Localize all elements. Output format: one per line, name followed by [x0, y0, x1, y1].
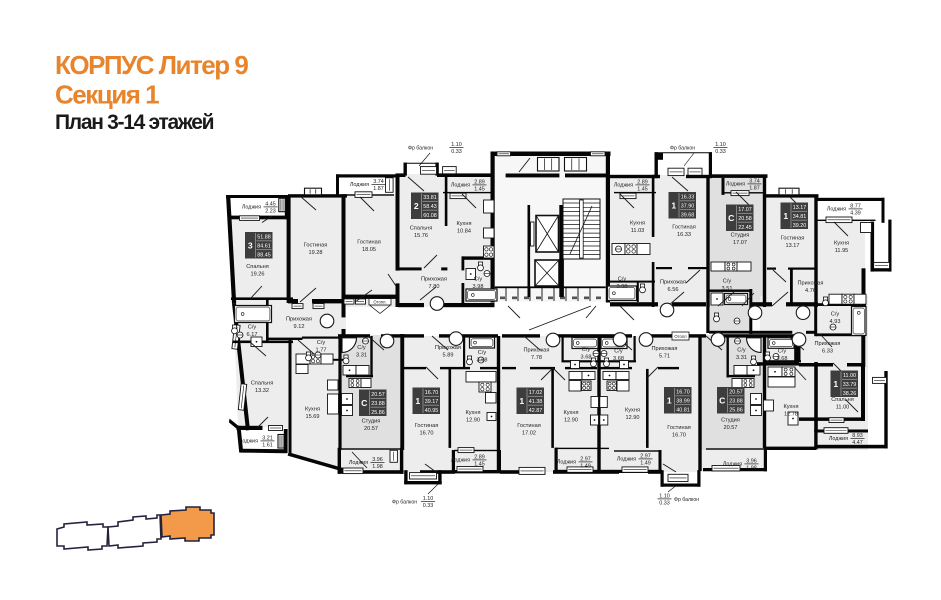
svg-text:12.90: 12.90: [626, 415, 640, 421]
svg-text:12.78: 12.78: [784, 411, 798, 417]
svg-text:37.90: 37.90: [681, 203, 695, 209]
svg-text:Гостиная: Гостиная: [517, 423, 540, 429]
svg-text:3.68: 3.68: [581, 354, 592, 360]
svg-text:Студия: Студия: [362, 419, 381, 425]
svg-text:Кухня: Кухня: [457, 221, 472, 227]
svg-text:Прихожая: Прихожая: [660, 280, 686, 286]
svg-text:1.87: 1.87: [373, 186, 384, 192]
svg-text:13.32: 13.32: [255, 388, 269, 394]
svg-text:1: 1: [671, 201, 676, 211]
svg-text:0.33: 0.33: [423, 503, 434, 509]
svg-text:11.03: 11.03: [631, 228, 645, 234]
svg-text:2.89: 2.89: [637, 179, 648, 185]
svg-text:2.89: 2.89: [474, 454, 485, 460]
svg-text:Отопл: Отопл: [674, 334, 687, 339]
svg-text:Гостиная: Гостиная: [415, 423, 438, 429]
svg-text:С/у: С/у: [474, 277, 483, 283]
svg-text:88.45: 88.45: [257, 252, 271, 258]
svg-text:С: С: [361, 398, 367, 408]
svg-text:16.70: 16.70: [425, 390, 439, 396]
svg-text:17.07: 17.07: [733, 240, 747, 246]
svg-text:40.81: 40.81: [676, 407, 690, 413]
svg-text:Фр балкон: Фр балкон: [674, 497, 699, 503]
svg-text:3.96: 3.96: [746, 458, 757, 464]
svg-text:16.70: 16.70: [676, 390, 690, 396]
svg-text:Прихожая: Прихожая: [652, 346, 678, 352]
svg-text:Спальня: Спальня: [410, 226, 432, 232]
svg-text:23.88: 23.88: [729, 398, 743, 404]
svg-text:С/у: С/у: [248, 325, 257, 331]
svg-text:19.26: 19.26: [251, 271, 265, 277]
svg-text:3.74: 3.74: [373, 179, 384, 185]
svg-text:Гостиная: Гостиная: [672, 225, 695, 231]
svg-text:1.10: 1.10: [659, 493, 670, 499]
svg-text:С/у: С/у: [831, 312, 840, 318]
svg-text:С/у: С/у: [723, 279, 732, 285]
svg-text:1: 1: [415, 396, 420, 406]
svg-text:20.57: 20.57: [724, 425, 738, 431]
svg-text:С/у: С/у: [618, 277, 627, 283]
svg-text:3.68: 3.68: [477, 357, 488, 363]
svg-text:С/у: С/у: [478, 350, 487, 356]
svg-text:1.45: 1.45: [474, 187, 485, 193]
svg-text:15.69: 15.69: [306, 414, 320, 420]
svg-text:38.99: 38.99: [676, 398, 690, 404]
svg-text:С/у: С/у: [778, 349, 787, 355]
svg-text:Лоджия: Лоджия: [617, 457, 636, 463]
svg-text:22.45: 22.45: [738, 225, 752, 231]
svg-text:2.23: 2.23: [265, 209, 276, 215]
svg-text:7.80: 7.80: [429, 284, 440, 290]
svg-text:38.26: 38.26: [843, 391, 857, 397]
svg-text:С: С: [719, 396, 725, 406]
svg-text:1.45: 1.45: [474, 462, 485, 468]
svg-text:2: 2: [414, 201, 419, 211]
svg-text:11.00: 11.00: [843, 373, 856, 379]
svg-text:Кухня: Кухня: [466, 410, 481, 416]
svg-text:19.28: 19.28: [309, 250, 323, 256]
svg-text:Лоджия: Лоджия: [349, 460, 368, 466]
svg-text:25.86: 25.86: [729, 407, 743, 413]
svg-text:1.49: 1.49: [580, 464, 591, 470]
svg-text:25.86: 25.86: [371, 410, 385, 416]
svg-text:20.57: 20.57: [371, 392, 385, 398]
svg-text:6.33: 6.33: [822, 348, 833, 354]
svg-text:17.02: 17.02: [522, 430, 536, 436]
svg-text:7.78: 7.78: [531, 355, 542, 361]
svg-text:Лоджия: Лоджия: [726, 182, 745, 188]
svg-text:Студия: Студия: [731, 233, 750, 239]
svg-text:5.89: 5.89: [443, 352, 454, 358]
svg-text:8.77: 8.77: [850, 203, 861, 209]
svg-text:1.87: 1.87: [749, 186, 760, 192]
svg-text:40.95: 40.95: [425, 408, 439, 414]
svg-text:Кухня: Кухня: [630, 221, 645, 227]
svg-text:Кухня: Кухня: [564, 410, 579, 416]
svg-text:13.17: 13.17: [793, 205, 807, 211]
svg-text:4.39: 4.39: [850, 211, 861, 217]
svg-text:Прихожая: Прихожая: [435, 345, 461, 351]
svg-text:2.97: 2.97: [640, 453, 651, 459]
svg-text:58.43: 58.43: [423, 204, 437, 210]
svg-text:12.90: 12.90: [564, 417, 578, 423]
svg-text:16.33: 16.33: [677, 232, 691, 238]
svg-text:20.57: 20.57: [729, 390, 743, 396]
svg-text:1.49: 1.49: [640, 461, 651, 467]
svg-text:39.68: 39.68: [681, 212, 695, 218]
svg-text:23.88: 23.88: [371, 401, 385, 407]
svg-text:11.95: 11.95: [835, 248, 849, 254]
svg-text:Лоджия: Лоджия: [827, 207, 846, 213]
svg-text:3.98: 3.98: [473, 284, 484, 290]
svg-text:3.98: 3.98: [617, 284, 628, 290]
svg-text:Кухня: Кухня: [834, 241, 849, 247]
svg-text:С/у: С/у: [737, 348, 746, 354]
svg-text:1.10: 1.10: [715, 142, 726, 148]
svg-text:Спальня: Спальня: [251, 381, 273, 387]
svg-text:Спальня: Спальня: [831, 397, 853, 403]
svg-text:С/у: С/у: [582, 347, 591, 353]
svg-text:4.45: 4.45: [265, 201, 276, 207]
svg-text:3.68: 3.68: [777, 356, 788, 362]
svg-text:60.08: 60.08: [423, 213, 437, 219]
svg-text:Прихожая: Прихожая: [524, 348, 550, 354]
svg-text:Лоджия: Лоджия: [614, 183, 633, 189]
svg-text:Фр балкон: Фр балкон: [670, 146, 695, 152]
svg-text:3: 3: [248, 241, 253, 251]
svg-text:84.61: 84.61: [257, 243, 271, 249]
svg-text:3.31: 3.31: [356, 352, 367, 358]
svg-text:39.20: 39.20: [793, 223, 807, 229]
svg-text:Прихожая: Прихожая: [815, 341, 841, 347]
svg-text:С/у: С/у: [317, 340, 326, 346]
svg-text:Лоджия: Лоджия: [239, 439, 258, 445]
svg-text:Лоджия: Лоджия: [451, 458, 470, 464]
svg-text:Прихожая: Прихожая: [286, 317, 312, 323]
svg-text:Лоджия: Лоджия: [350, 182, 369, 188]
svg-text:Секция 1: Секция 1: [55, 80, 159, 110]
svg-text:С/у: С/у: [614, 349, 623, 355]
svg-text:1.77: 1.77: [316, 347, 327, 353]
svg-text:Студия: Студия: [721, 418, 740, 424]
svg-text:Отопл.: Отопл.: [373, 300, 386, 305]
svg-text:1.98: 1.98: [372, 464, 383, 470]
svg-text:0.33: 0.33: [659, 501, 670, 507]
svg-text:Лоджия: Лоджия: [242, 205, 261, 211]
svg-text:2.97: 2.97: [580, 456, 591, 462]
svg-text:6.56: 6.56: [668, 287, 679, 293]
svg-text:20.57: 20.57: [364, 426, 378, 432]
svg-text:3.31: 3.31: [736, 355, 747, 361]
svg-text:С/у: С/у: [357, 345, 366, 351]
svg-text:16.33: 16.33: [681, 195, 695, 201]
svg-text:16.70: 16.70: [420, 430, 434, 436]
svg-text:3.68: 3.68: [613, 356, 624, 362]
svg-text:Прихожая: Прихожая: [798, 281, 824, 287]
svg-text:1: 1: [833, 379, 838, 389]
svg-text:Гостиная: Гостиная: [304, 243, 327, 249]
svg-text:20.58: 20.58: [738, 216, 752, 222]
svg-text:16.70: 16.70: [672, 432, 686, 438]
svg-text:План 3-14 этажей: План 3-14 этажей: [55, 111, 214, 134]
svg-text:1.98: 1.98: [746, 466, 757, 472]
svg-text:Прихожая: Прихожая: [421, 277, 447, 283]
svg-text:Спальня: Спальня: [246, 264, 268, 270]
svg-text:1: 1: [783, 211, 788, 221]
svg-text:11.00: 11.00: [836, 404, 850, 410]
svg-text:15.76: 15.76: [414, 233, 428, 239]
svg-text:12.90: 12.90: [466, 417, 480, 423]
svg-text:3.51: 3.51: [722, 286, 733, 292]
svg-text:Гостиная: Гостиная: [667, 425, 690, 431]
svg-text:2.89: 2.89: [474, 179, 485, 185]
svg-text:1.61: 1.61: [262, 443, 273, 449]
svg-text:1.10: 1.10: [423, 496, 434, 502]
svg-text:0.33: 0.33: [451, 149, 462, 155]
svg-text:Гостиная: Гостиная: [781, 236, 804, 242]
svg-text:17.07: 17.07: [738, 207, 752, 213]
svg-text:18.05: 18.05: [362, 247, 376, 253]
svg-text:51.88: 51.88: [257, 235, 271, 241]
svg-text:3.74: 3.74: [749, 178, 760, 184]
svg-text:3.21: 3.21: [262, 435, 273, 441]
svg-text:33.81: 33.81: [423, 195, 437, 201]
svg-text:Лоджия: Лоджия: [723, 462, 742, 468]
svg-text:33.79: 33.79: [843, 382, 857, 388]
svg-text:Фр балкон: Фр балкон: [392, 500, 417, 506]
svg-text:5.71: 5.71: [659, 353, 670, 359]
svg-text:Лоджия: Лоджия: [829, 436, 848, 442]
svg-text:1.45: 1.45: [637, 187, 648, 193]
svg-text:Кухня: Кухня: [625, 408, 640, 414]
svg-text:9.12: 9.12: [294, 324, 305, 330]
svg-text:8.93: 8.93: [852, 433, 863, 439]
svg-text:10.84: 10.84: [457, 228, 471, 234]
svg-text:Кухня: Кухня: [305, 407, 320, 413]
svg-text:34.81: 34.81: [793, 214, 807, 220]
svg-text:17.02: 17.02: [529, 390, 543, 396]
svg-text:С: С: [728, 213, 734, 223]
svg-text:Кухня: Кухня: [784, 404, 799, 410]
svg-text:39.17: 39.17: [425, 399, 439, 405]
svg-text:Лоджия: Лоджия: [451, 183, 470, 189]
svg-text:1: 1: [667, 396, 672, 406]
svg-text:4.47: 4.47: [852, 440, 863, 446]
svg-text:0.33: 0.33: [715, 149, 726, 155]
svg-text:Фр балкон: Фр балкон: [408, 146, 433, 152]
svg-text:3.96: 3.96: [372, 457, 383, 463]
svg-text:41.38: 41.38: [529, 399, 543, 405]
svg-text:1: 1: [519, 396, 524, 406]
svg-text:4.93: 4.93: [830, 319, 841, 325]
svg-text:4.76: 4.76: [805, 288, 816, 294]
svg-text:13.17: 13.17: [786, 243, 800, 249]
svg-text:Лоджия: Лоджия: [557, 460, 576, 466]
svg-text:1.10: 1.10: [451, 142, 462, 148]
svg-text:6.17: 6.17: [247, 332, 258, 338]
svg-text:КОРПУС Литер 9: КОРПУС Литер 9: [55, 50, 248, 80]
svg-text:Гостиная: Гостиная: [357, 240, 380, 246]
svg-text:42.87: 42.87: [529, 408, 543, 414]
